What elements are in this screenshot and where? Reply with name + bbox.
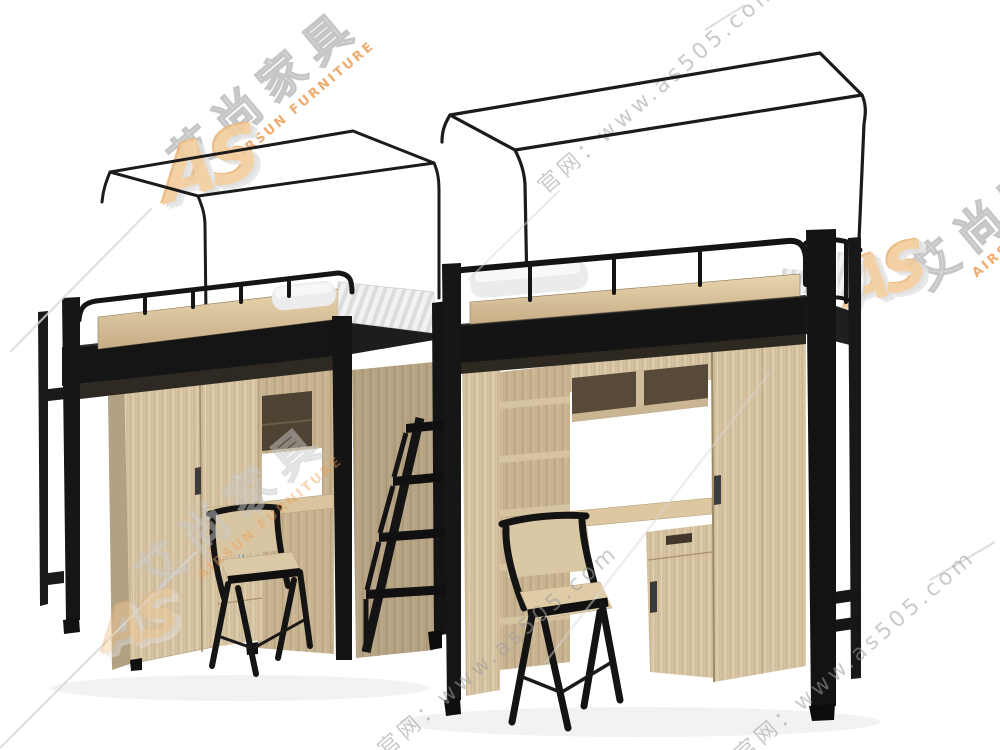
ladder [332,301,447,660]
front-right-post [806,229,836,708]
front-left-post [62,297,80,622]
mid-post [332,316,352,660]
chair-stretchers [520,662,612,692]
post-foot [63,618,80,634]
rear-right-post [848,237,861,679]
bed-rear-post [38,311,48,606]
wardrobe-right [712,342,806,682]
front-left-post [442,263,461,702]
floor-shadow-left [50,675,430,701]
cabinet-door-handle [650,581,657,613]
cabinet-foot [130,658,142,671]
wardrobe-handle [714,475,721,505]
ladder-foot [428,630,442,650]
product-photo-canvas: 艾尚家具 AIRSUN FURNITURE AS 艾尚家具 AIRSUN FUR… [0,0,1000,750]
